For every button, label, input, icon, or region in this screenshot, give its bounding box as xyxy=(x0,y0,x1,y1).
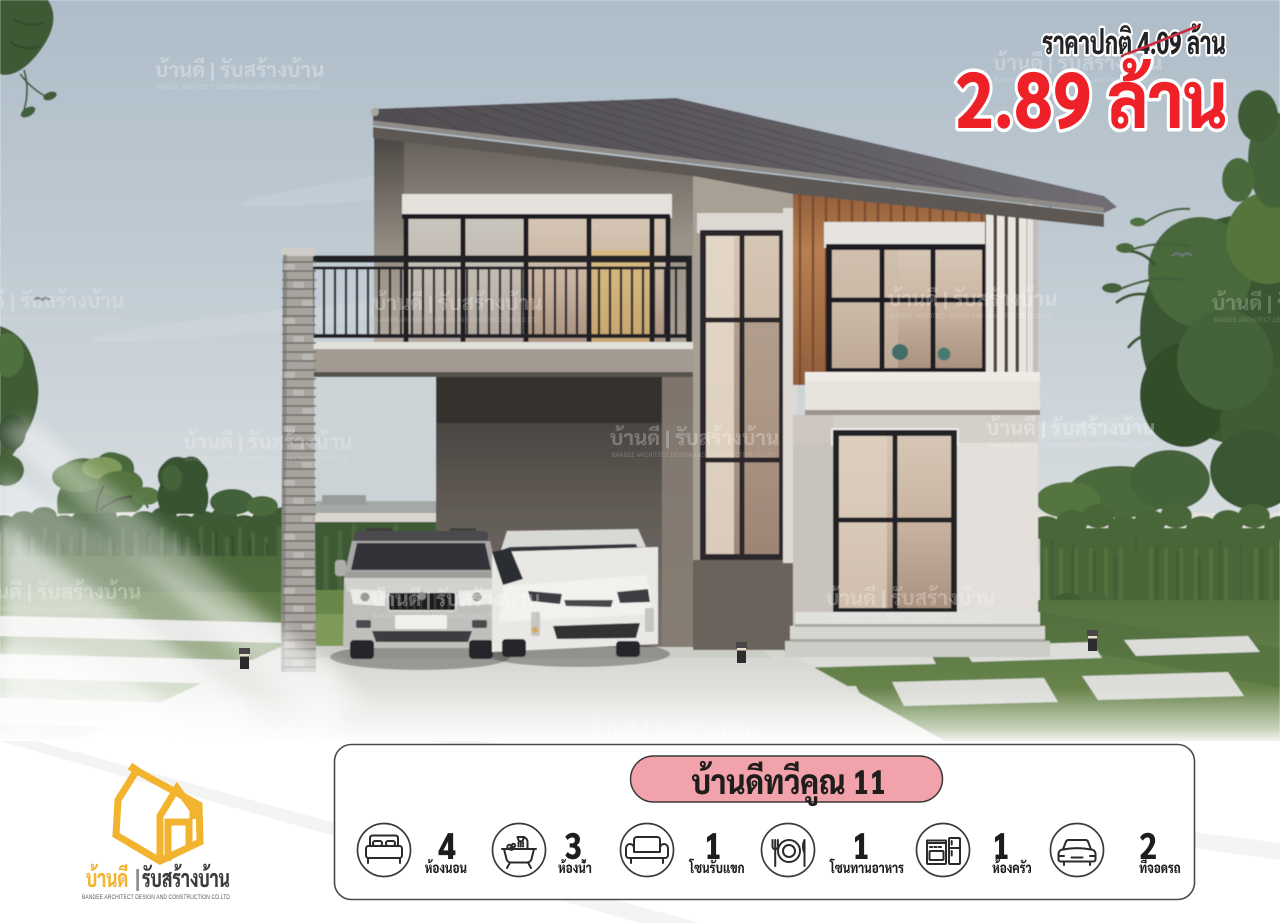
svg-text:BANDEE ARCHITECT DESIGN AND CO: BANDEE ARCHITECT DESIGN AND CONSTRUCTION… xyxy=(82,894,230,901)
